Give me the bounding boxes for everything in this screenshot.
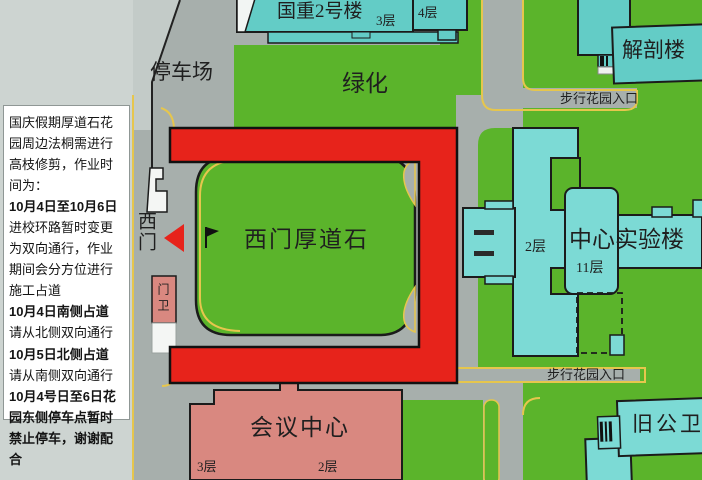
entrance-stairs: [600, 56, 604, 66]
greenery-label: 绿化: [342, 72, 388, 95]
lawn-bottom-middle: [390, 400, 483, 480]
conference-floor-right-label: 2层: [318, 460, 338, 473]
gate-guard-label: 门卫: [157, 283, 169, 315]
lab-stair-mark: [474, 230, 494, 235]
parking-label: 停车场: [150, 62, 213, 83]
conference-center-label: 会议中心: [250, 416, 350, 439]
lab-stair-mark: [474, 251, 494, 256]
west-gate-label: 西门: [136, 211, 155, 253]
notice-line: 10月4日至10月6日: [9, 196, 124, 217]
notice-line: 进校环路暂时变更为双向通行，作业期间会分方位进行施工占道: [9, 217, 124, 301]
guozhong-floor-label: 3层: [376, 14, 396, 27]
notice-line: 国庆假期厚道石花园周边法桐需进行高枝修剪，作业时间为：: [9, 112, 124, 196]
old-public-health-label: 旧公卫楼: [632, 414, 702, 435]
notice-line: 请从南侧双向通行: [9, 365, 124, 386]
median-strip: [484, 400, 499, 480]
notice-line: 请从北侧双向通行: [9, 322, 124, 343]
guozhong-building-label: 国重2号楼: [277, 2, 363, 21]
lab-west-entrance: [463, 208, 515, 277]
lab-wing-floor-label: 2层: [525, 241, 546, 255]
west-gate-stone-label: 西门厚道石: [244, 228, 369, 251]
walk-garden-entrance-top-label: 步行花园入口: [560, 92, 638, 105]
walk-garden-entrance-bottom-label: 步行花园入口: [547, 368, 625, 381]
conference-floor-left-label: 3层: [197, 460, 217, 473]
anatomy-building-label: 解剖楼: [622, 40, 685, 61]
campus-map: 国庆假期厚道石花园周边法桐需进行高枝修剪，作业时间为： 10月4日至10月6日 …: [0, 0, 702, 480]
central-lab-label: 中心实验楼: [569, 228, 684, 251]
notice-panel: 国庆假期厚道石花园周边法桐需进行高枝修剪，作业时间为： 10月4日至10月6日 …: [3, 105, 130, 420]
guozhong-step: [352, 32, 370, 38]
lab-tower-floor-label: 11层: [576, 262, 603, 276]
notice-line: 10月4日南侧占道: [9, 301, 124, 322]
annex-floor-label: 4层: [418, 6, 438, 19]
notice-line: 10月4号日至6日花园东侧停车点暂时禁止停车，谢谢配合: [9, 386, 124, 470]
notice-line: 10月5日北侧占道: [9, 344, 124, 365]
